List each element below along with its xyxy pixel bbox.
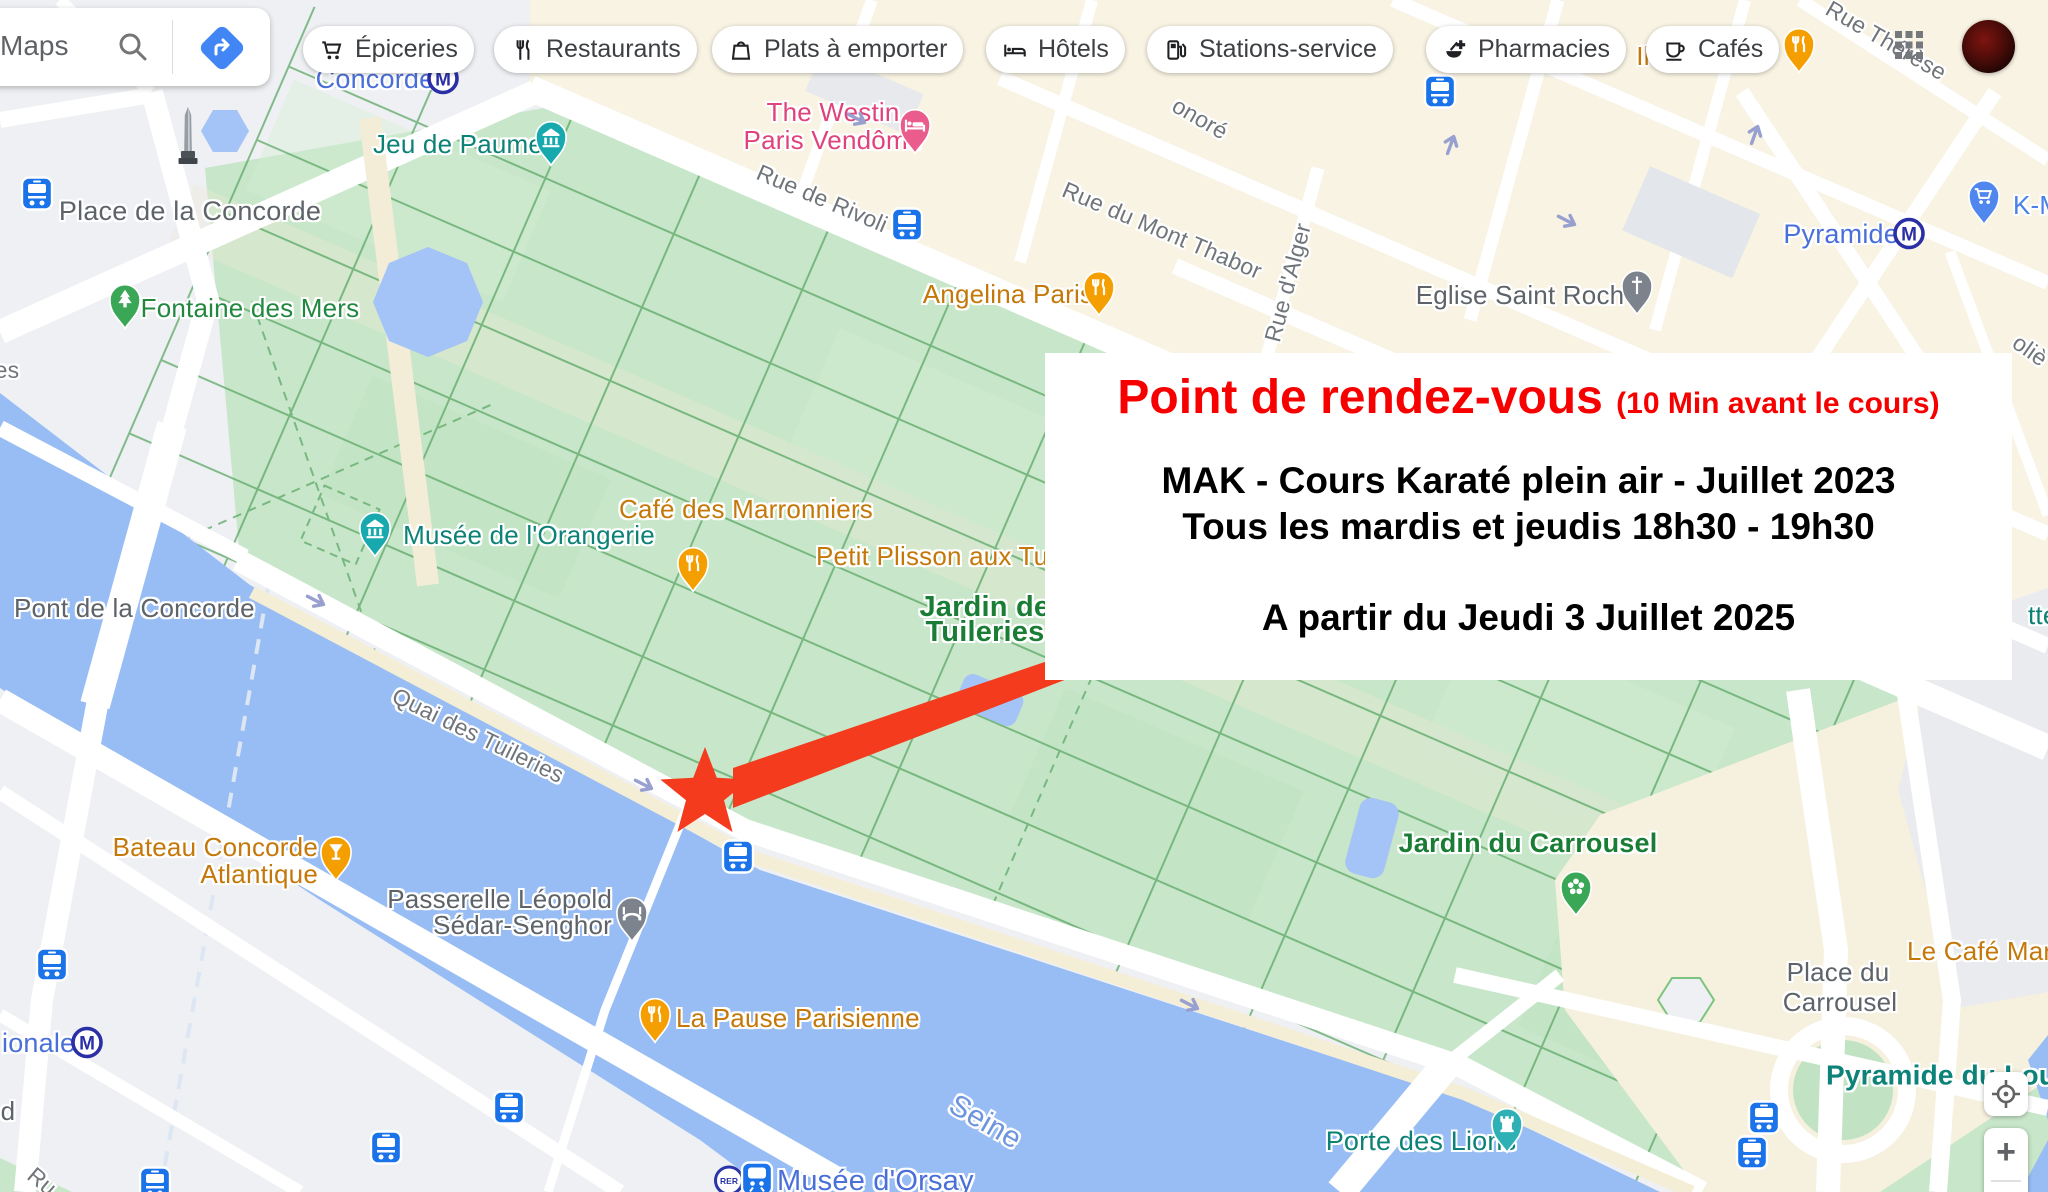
map-label[interactable]: Jeu de Paume [373,129,543,160]
bus-pin[interactable] [492,1090,526,1131]
info-line-2: Tous les mardis et jeudis 18h30 - 19h30 [1045,504,2012,550]
map-label[interactable]: Carrousel [1783,987,1898,1018]
svg-text:M: M [79,1034,95,1055]
flower-pin[interactable] [1558,870,1595,922]
my-location-button[interactable] [1984,1072,2028,1116]
map-label[interactable]: Musée d'Orsay [777,1165,974,1192]
chip-label: Pharmacies [1478,35,1610,64]
chip-label: Hôtels [1038,35,1109,64]
hotel-pin[interactable] [897,108,934,160]
svg-text:RER: RER [720,1176,738,1186]
tower-pin[interactable] [1489,1107,1526,1159]
takeout-icon [728,37,754,63]
chip-hotels[interactable]: Hôtels [986,26,1125,73]
map-label[interactable]: K-M [2013,190,2048,221]
bus-pin[interactable] [35,947,69,988]
map-label[interactable]: Le Café Marly [1907,936,2048,967]
chip-cafes[interactable]: Cafés [1646,26,1779,73]
map-label[interactable]: Angelina Paris [923,279,1093,310]
restaurant-pin[interactable] [1081,270,1118,322]
bus-pin[interactable] [20,176,54,217]
pharmacy-icon [1442,37,1468,63]
obelisk-pin[interactable] [175,105,201,172]
divider [172,20,173,74]
metro-pin[interactable]: M [1891,216,1927,257]
tree-pin[interactable] [107,283,144,335]
cafe-icon [1662,37,1688,63]
grocery-pin[interactable] [1966,179,2003,231]
info-title-suffix: (10 Min avant le cours) [1616,387,1939,420]
search-icon[interactable] [116,30,150,69]
chip-label: Cafés [1698,35,1763,64]
metro-pin[interactable]: M [69,1025,105,1066]
bus-pin[interactable] [138,1166,172,1192]
bus-pin[interactable] [890,207,924,248]
chip-pharmacies[interactable]: Pharmacies [1426,26,1626,73]
map-label[interactable]: Atlantique [200,859,318,890]
chip-label: Épiceries [355,35,458,64]
chip-gas-stations[interactable]: Stations-service [1147,26,1393,73]
divider [1991,1180,2021,1182]
map-label[interactable]: Jardin du Carrousel [1399,828,1658,859]
zoom-in-button[interactable]: + [1984,1128,2028,1176]
bus-pin[interactable] [1735,1135,1769,1176]
museum-pin[interactable] [357,511,394,563]
restaurant-icon [510,37,536,63]
train-pin[interactable] [740,1161,774,1192]
info-line-1: MAK - Cours Karaté plein air - Juillet 2… [1045,458,2012,504]
map-label[interactable]: tte [2028,600,2048,631]
chip-label: Plats à emporter [764,35,947,64]
church-pin[interactable] [1619,269,1656,321]
chip-takeout[interactable]: Plats à emporter [712,26,963,73]
map-label[interactable]: Café des Marronniers [619,494,873,525]
info-line-3: A partir du Jeudi 3 Juillet 2025 [1045,597,2012,639]
zoom-control: + [1984,1128,2028,1192]
bus-pin[interactable] [721,839,755,880]
cart-icon [319,37,345,63]
map-label[interactable]: Eglise Saint Roch [1416,280,1625,311]
chip-label: Stations-service [1199,35,1377,64]
map-label[interactable]: The Westin [766,97,899,128]
map-label[interactable]: Sédar-Senghor [433,910,612,941]
google-maps-app: ConcordeJeu de PaumePlace de la Concorde… [0,0,2048,1192]
bed-icon [1002,37,1028,63]
chip-groceries[interactable]: Épiceries [303,26,474,73]
bus-pin[interactable] [369,1130,403,1171]
bar-pin[interactable] [318,835,355,887]
chip-label: Restaurants [546,35,681,64]
chip-restaurants[interactable]: Restaurants [494,26,697,73]
map-label[interactable]: Pont de la Concorde [14,593,255,624]
apps-grid-icon[interactable] [1894,30,1924,65]
map-label[interactable]: ionale [2,1028,75,1059]
svg-text:M: M [1901,225,1917,246]
map-label[interactable]: Musée de l'Orangerie [403,520,655,551]
info-title: Point de rendez-vous (10 Min avant le co… [1045,370,2012,425]
search-input[interactable]: Maps [0,30,68,62]
restaurant-pin[interactable] [675,546,712,598]
museum-pin[interactable] [533,120,570,172]
locate-icon [1991,1079,2021,1109]
map-label[interactable]: La Pause Parisienne [676,1003,920,1034]
meeting-info-box: Point de rendez-vous (10 Min avant le co… [1045,353,2012,680]
restaurant-pin[interactable] [1781,27,1818,79]
bus-pin[interactable] [1423,74,1457,115]
map-label[interactable]: Place du [1787,957,1890,988]
map-label[interactable]: Place de la Concorde [59,196,321,227]
account-avatar[interactable] [1962,20,2015,73]
restaurant-pin[interactable] [637,997,674,1049]
bridge-pin[interactable] [614,896,651,948]
directions-icon[interactable] [196,22,248,74]
gas-icon [1163,37,1189,63]
map-label[interactable]: Fontaine des Mers [141,293,360,324]
search-card: Maps [0,8,270,86]
